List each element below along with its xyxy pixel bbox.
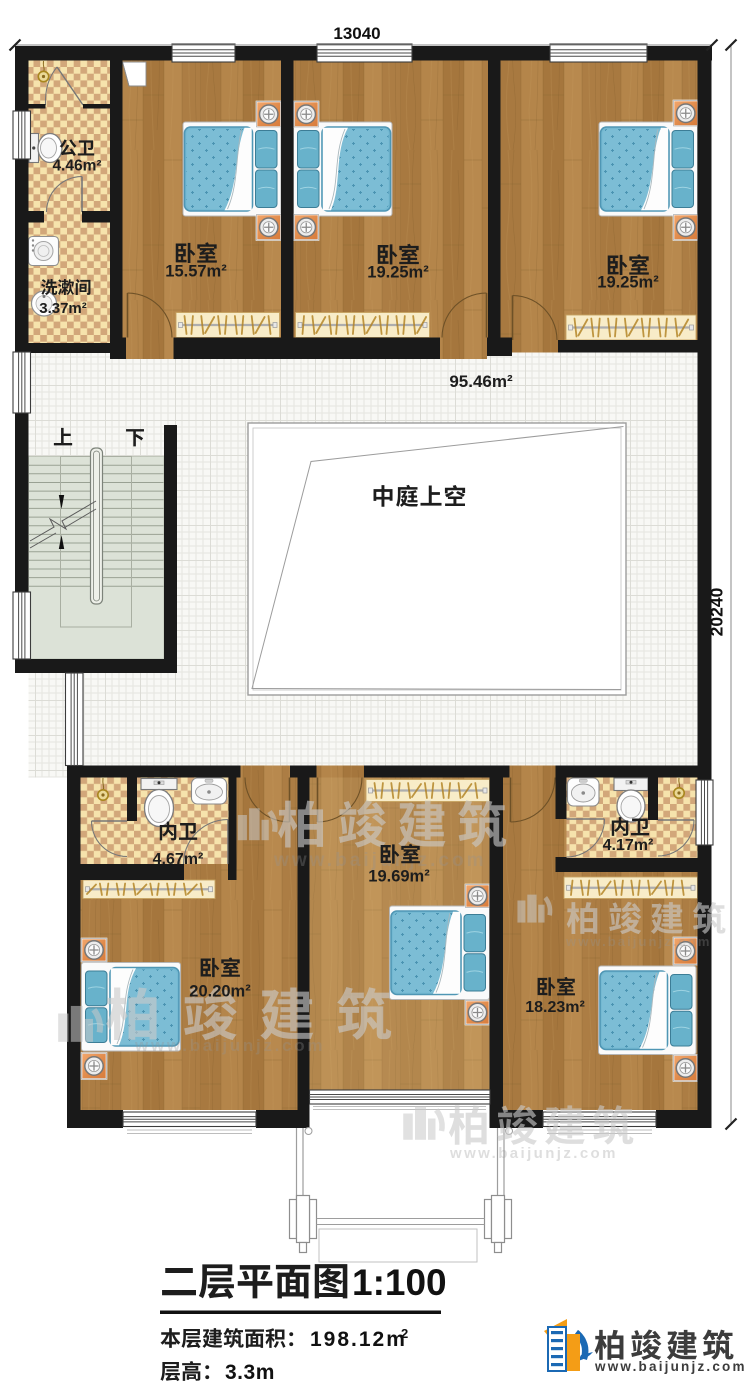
- svg-text:15.57m²: 15.57m²: [165, 262, 227, 280]
- svg-text:4.46m²: 4.46m²: [52, 157, 101, 174]
- svg-text:20.20m²: 20.20m²: [189, 982, 251, 1000]
- svg-text:19.25m²: 19.25m²: [367, 263, 429, 281]
- svg-text:www.baijunjz.com: www.baijunjz.com: [134, 1036, 325, 1055]
- svg-text:20240: 20240: [707, 587, 727, 636]
- svg-text:18.23m²: 18.23m²: [525, 999, 585, 1016]
- svg-text:www.baijunjz.com: www.baijunjz.com: [449, 1145, 618, 1162]
- svg-text:4.17m²: 4.17m²: [603, 837, 654, 854]
- svg-text:19.69m²: 19.69m²: [368, 867, 430, 885]
- svg-text:95.46m²: 95.46m²: [449, 372, 513, 391]
- svg-text:4.67m²: 4.67m²: [153, 851, 204, 868]
- svg-text:19.25m²: 19.25m²: [597, 273, 659, 291]
- svg-text:3.37m²: 3.37m²: [39, 300, 87, 317]
- svg-text:1:100: 1:100: [352, 1262, 447, 1303]
- svg-text:2: 2: [401, 1326, 408, 1341]
- svg-text:13040: 13040: [333, 24, 380, 43]
- svg-text:www.baijunjz.com: www.baijunjz.com: [565, 934, 711, 949]
- svg-text:198.12m: 198.12m: [310, 1328, 407, 1351]
- svg-text:3.3m: 3.3m: [225, 1361, 275, 1384]
- svg-text:www.baijunjz.com: www.baijunjz.com: [594, 1359, 747, 1374]
